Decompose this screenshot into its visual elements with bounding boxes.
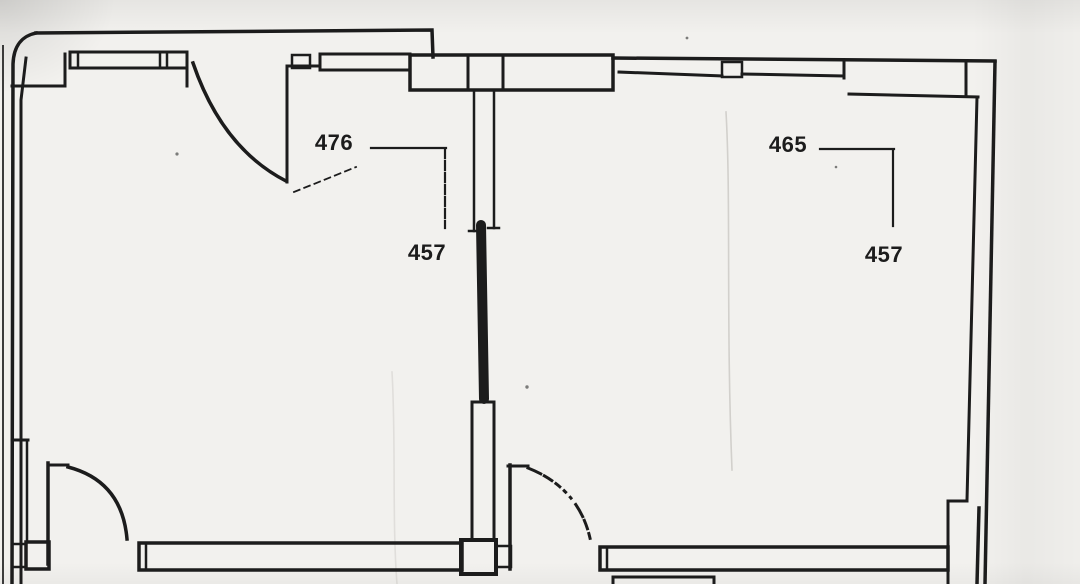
- window-frame: [70, 52, 187, 68]
- partition-wall-center: [461, 90, 511, 574]
- wall-bottom-right: [600, 547, 948, 584]
- wall-pier-top-center: [410, 55, 613, 90]
- left-outer-line: [12, 33, 36, 584]
- window-frame: [320, 54, 410, 70]
- paper-crease: [392, 112, 732, 584]
- speck: [175, 152, 178, 155]
- door-bottom-center: [508, 465, 591, 569]
- left-inner-line: [21, 58, 26, 584]
- top-wall-line: [613, 58, 995, 61]
- dimension-left-room: 476 457: [294, 130, 446, 265]
- floor-plan-drawing: 476 457 465 457: [0, 0, 1080, 584]
- window-jog-box: [722, 62, 742, 77]
- dimension-label-right-width: 465: [769, 132, 807, 157]
- exterior-wall-right: [948, 62, 995, 584]
- wall-outline: [600, 547, 948, 570]
- crease-line: [392, 372, 397, 584]
- speck: [835, 166, 838, 169]
- window-sill: [742, 74, 843, 76]
- scanned-floor-plan-page: 476 457 465 457: [0, 0, 1080, 584]
- door-bottom-left: [12, 463, 127, 569]
- dimension-label-right-depth: 457: [865, 242, 903, 267]
- exterior-wall-left: [3, 33, 36, 584]
- partition-column: [472, 402, 494, 540]
- step-below-wall: [613, 577, 714, 584]
- sliding-door-black-bar: [481, 225, 484, 399]
- junction-pier: [461, 540, 496, 574]
- door-swing-arc: [68, 467, 127, 539]
- column-inner-line: [977, 508, 979, 584]
- dimension-leader-dashed: [294, 167, 356, 192]
- window-top-left-second: [287, 54, 410, 70]
- right-outer-line: [985, 62, 995, 584]
- wall-face-line: [849, 94, 978, 97]
- speck: [525, 385, 528, 388]
- wall-bottom-left: [139, 543, 462, 570]
- window-top-right: [613, 58, 995, 97]
- crease-line: [726, 112, 732, 470]
- wall-outline: [139, 543, 462, 570]
- door-swing-arc: [528, 468, 591, 543]
- door-top-left: [193, 63, 287, 182]
- dimension-label-left-width: 476: [315, 130, 353, 155]
- window-sill: [619, 72, 722, 76]
- dimension-label-left-depth: 457: [408, 240, 446, 265]
- dimension-right-room: 465 457: [769, 132, 903, 267]
- door-swing-arc: [193, 63, 286, 181]
- pier-outline: [410, 55, 613, 90]
- door-hinge-pier: [26, 542, 49, 569]
- right-inner-line: [967, 97, 977, 500]
- speck: [686, 37, 689, 40]
- window-top-left: [12, 52, 187, 86]
